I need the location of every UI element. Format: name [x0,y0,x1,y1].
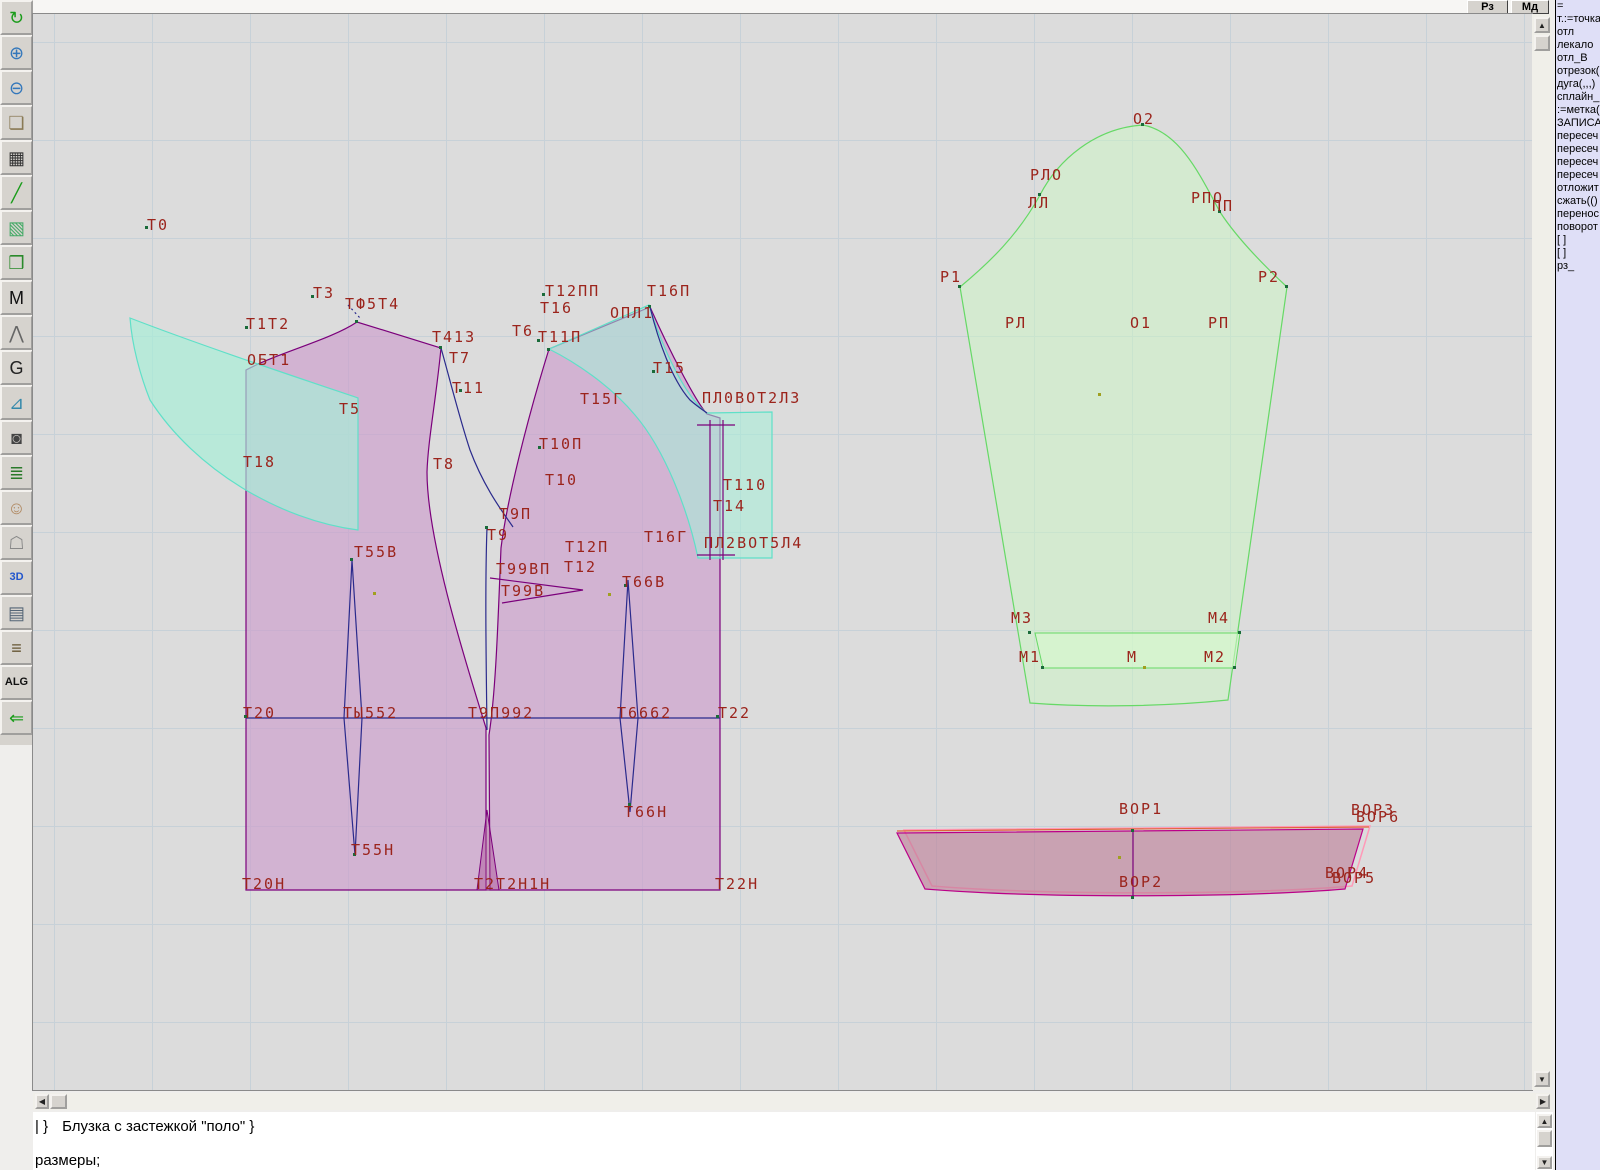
point-label: Т2Т2Н1Н [474,877,551,891]
point-label: М2 [1204,650,1226,664]
grace-button[interactable]: G [0,350,33,385]
point-label: ОБТ1 [247,353,291,367]
point-label: М [1127,650,1138,664]
3d-button[interactable]: 3D [0,560,33,595]
3d-icon: 3D [9,572,23,583]
command-item[interactable]: пересеч [1556,143,1600,156]
point-label: Т11П [538,330,582,344]
point-label: Т1Т2 [246,317,290,331]
point-labels-layer: Т0Т3ТФ5Т4Т1Т2ОБТ1Т413Т7Т11Т5Т18Т8Т12ППТ1… [33,14,1532,1090]
pattern-piece-button[interactable]: ❒ [0,245,33,280]
program-line-1: | }Блузка с застежкой "поло" } [35,1118,254,1135]
point-label: Т9 [487,528,509,542]
point-label: Т20 [243,706,276,720]
program-title-text: Блузка с застежкой "поло" } [62,1118,254,1135]
point-label: Т11 [452,381,485,395]
point-label: О2 [1133,112,1155,126]
top-strip [33,0,1532,14]
text-list-icon: ▤ [8,604,25,622]
alg-button[interactable]: ALG [0,665,33,700]
pattern-m-button[interactable]: M [0,280,33,315]
point-label: Т10 [545,473,578,487]
point-label: ОПЛ1 [610,306,654,320]
image-icon: ▧ [8,219,25,237]
scroll-left-icon[interactable]: ◀ [35,1094,49,1109]
point-label: Т15Г [580,392,624,406]
point-label: Т8 [433,457,455,471]
point-label: Т12ПП [545,284,600,298]
canvas-vscrollbar[interactable]: ▲ ▼ [1532,14,1552,1090]
program-text-area[interactable]: | }Блузка с застежкой "поло" } размеры; [33,1112,1535,1170]
command-item[interactable]: отрезок( [1556,65,1600,78]
command-item[interactable]: сжать(() [1556,195,1600,208]
textarea-vscroll-thumb[interactable] [1537,1130,1552,1147]
camera-button[interactable]: ◙ [0,420,33,455]
refresh-button[interactable]: ↻ [0,0,33,35]
point-label: Т14 [713,499,746,513]
textarea-vscrollbar[interactable]: ▲ ▼ [1536,1112,1553,1170]
command-item[interactable]: дуга(,,,) [1556,78,1600,91]
line-icon: ╱ [11,184,22,202]
command-item[interactable]: сплайн_ [1556,91,1600,104]
letter-g-icon: G [9,359,23,377]
list-button[interactable]: ▤ [0,595,33,630]
exit-arrow-icon: ⇐ [9,709,24,727]
textarea-scroll-up-icon[interactable]: ▲ [1537,1114,1552,1128]
image-button[interactable]: ▧ [0,210,33,245]
point-label: М3 [1011,611,1033,625]
point-label: М4 [1208,611,1230,625]
point-label: Т55Н [351,843,395,857]
point-label: Р1 [940,270,962,284]
alg-icon: ALG [5,677,28,688]
point-label: РП [1208,316,1230,330]
portrait-icon: ☺ [7,499,25,517]
point-label: Т10П [539,437,583,451]
zoom-in-icon: ⊕ [9,44,24,62]
point-label: Т12П [565,540,609,554]
zoom-in-button[interactable]: ⊕ [0,35,33,70]
point-label: Т5 [339,402,361,416]
point-label: М1 [1019,650,1041,664]
point-label: ТФ5Т4 [345,297,400,311]
point-label: Т99В [501,584,545,598]
garment-button[interactable]: ☖ [0,525,33,560]
point-label: Т9П992 [468,706,534,720]
camera-icon: ◙ [11,429,22,447]
point-label: Т99ВП [496,562,551,576]
pattern-cad-window: { "top_buttons": [ {"label": "Рз"}, {"la… [0,0,1600,1170]
point-label: ПЛ0ВОТ2Л3 [702,391,801,405]
point-label: Т66В [622,575,666,589]
point-label: РЛ [1005,316,1027,330]
scroll-up-icon[interactable]: ▲ [1534,17,1550,33]
command-item[interactable]: перенос [1556,208,1600,221]
pattern-icon: ❒ [8,254,24,272]
ruler-icon: ⊿ [9,394,24,412]
scroll-right-icon[interactable]: ▶ [1536,1094,1550,1109]
compass-button[interactable]: ⋀ [0,315,33,350]
point-label: ЛЛ [1028,196,1050,210]
point-label: ТЫ552 [343,706,398,720]
point-label: РЛО [1030,168,1063,182]
point-label: Т66Н [624,805,668,819]
point-label: Т18 [243,455,276,469]
command-item[interactable]: пересеч [1556,156,1600,169]
table-button[interactable]: ≣ [0,455,33,490]
command-panel: =т.:=точкаотллекалоотл_Вотрезок(дуга(,,,… [1555,0,1600,1170]
command-item[interactable]: [ ] [1556,234,1600,247]
command-item[interactable]: рз_ [1556,260,1600,273]
md-button[interactable]: Мд [1511,0,1549,14]
command-item[interactable]: т.:=точка [1556,13,1600,26]
command-item[interactable]: отл [1556,26,1600,39]
point-label: ВОР2 [1119,875,1163,889]
piece-lens-icon: ❏ [8,114,24,132]
zoom-out-icon: ⊖ [9,79,24,97]
point-label: Т110 [723,478,767,492]
point-label: Т55В [354,545,398,559]
point-label: ПП [1212,199,1234,213]
command-item[interactable]: :=метка( [1556,104,1600,117]
point-label: Т22Н [715,877,759,891]
point-label: О1 [1130,316,1152,330]
ruler-button[interactable]: ⊿ [0,385,33,420]
command-item[interactable]: лекало [1556,39,1600,52]
point-label: ВОР5 [1332,871,1376,885]
command-item[interactable]: пересеч [1556,130,1600,143]
point-label: Т16П [647,284,691,298]
command-item[interactable]: отложит [1556,182,1600,195]
grid-icon: ▦ [8,149,25,167]
point-label: Т3 [313,286,335,300]
preview-piece-button[interactable]: ❏ [0,105,33,140]
point-label: Т6 [512,324,534,338]
grid-button[interactable]: ▦ [0,140,33,175]
scroll-down-icon[interactable]: ▼ [1534,1071,1550,1087]
letter-m-icon: M [9,289,24,307]
vscroll-thumb[interactable] [1534,35,1550,51]
point-label: Т413 [432,330,476,344]
left-toolbar: ↻⊕⊖❏▦╱▧❒M⋀G⊿◙≣☺☖3D▤≡ALG⇐ [0,0,33,745]
zoom-out-button[interactable]: ⊖ [0,70,33,105]
point-label: Т9П [499,507,532,521]
point-label: ПЛ2ВОТ5Л4 [704,536,803,550]
spreadsheet-icon: ≣ [9,464,24,482]
drawing-canvas[interactable]: Т0Т3ТФ5Т4Т1Т2ОБТ1Т413Т7Т11Т5Т18Т8Т12ППТ1… [33,14,1532,1090]
compass-icon: ⋀ [9,324,24,342]
point-label: Т16 [540,301,573,315]
program-line-2: размеры; [35,1152,100,1169]
refresh-icon: ↻ [9,9,24,27]
command-item[interactable]: ЗАПИСА [1556,117,1600,130]
exit-button[interactable]: ⇐ [0,700,33,735]
measure-line-button[interactable]: ╱ [0,175,33,210]
hscroll-thumb[interactable] [50,1094,67,1109]
command-item[interactable]: поворот [1556,221,1600,234]
point-label: Т7 [449,351,471,365]
jacket-icon: ☖ [8,534,24,552]
books-button[interactable]: ≡ [0,630,33,665]
rz-button[interactable]: Рз [1467,0,1508,14]
point-label: Т20Н [242,877,286,891]
text-cursor: | } [35,1118,48,1135]
point-label: ВОР1 [1119,802,1163,816]
point-label: Р2 [1258,270,1280,284]
command-item[interactable]: пересеч [1556,169,1600,182]
command-item[interactable]: = [1556,0,1600,13]
point-label: Т6662 [617,706,672,720]
point-label: Т15 [653,361,686,375]
point-label: ВОР6 [1356,810,1400,824]
command-item[interactable]: отл_В [1556,52,1600,65]
books-icon: ≡ [11,639,22,657]
point-label: Т22 [718,706,751,720]
point-label: Т0 [147,218,169,232]
point-label: Т16Г [644,530,688,544]
photo-button[interactable]: ☺ [0,490,33,525]
point-label: Т12 [564,560,597,574]
textarea-scroll-down-icon[interactable]: ▼ [1537,1156,1552,1169]
canvas-hscrollbar[interactable]: ◀ ▶ [33,1093,1552,1110]
command-item[interactable]: [ ] [1556,247,1600,260]
